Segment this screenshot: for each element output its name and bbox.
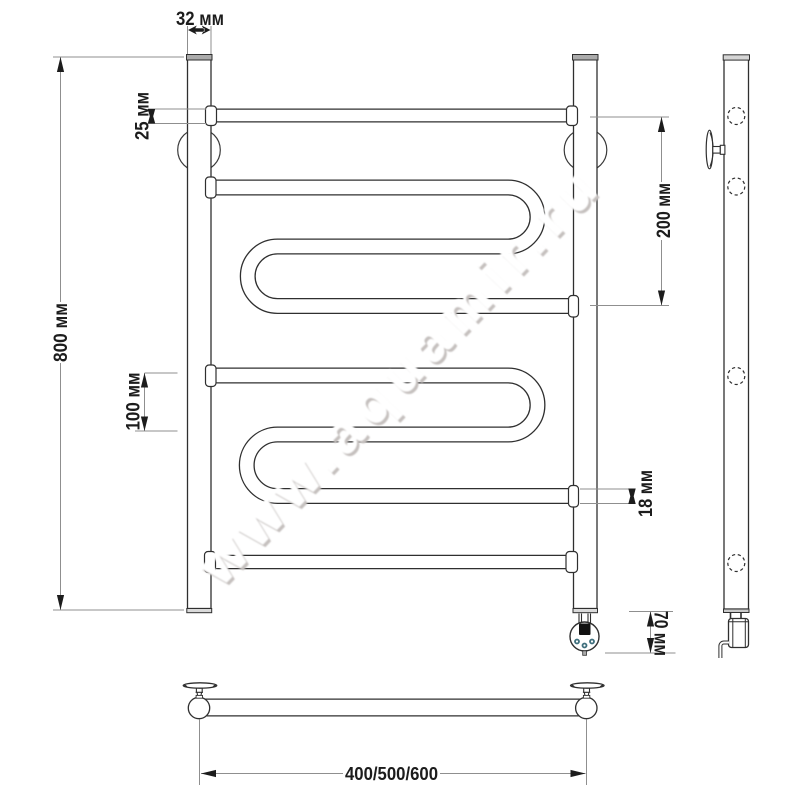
svg-text:25 мм: 25 мм	[132, 92, 154, 140]
svg-text:100 мм: 100 мм	[123, 373, 145, 431]
svg-text:32 мм: 32 мм	[176, 8, 224, 30]
svg-text:18 мм: 18 мм	[635, 470, 657, 517]
svg-text:200 мм: 200 мм	[653, 183, 675, 238]
svg-text:800 мм: 800 мм	[50, 303, 72, 362]
svg-text:400/500/600: 400/500/600	[345, 763, 438, 784]
svg-text:70 мм: 70 мм	[650, 611, 671, 656]
